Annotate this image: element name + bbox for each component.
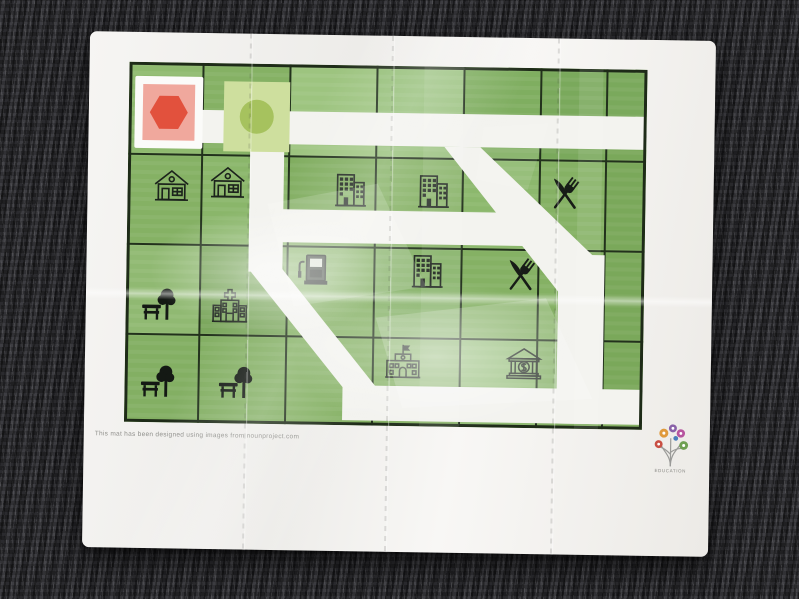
logo-caption: EDUCATION [643,468,697,474]
activity-mat: This mat has been designed using images … [82,31,716,557]
publisher-logo: EDUCATION [643,420,698,477]
mat-caption: This mat has been designed using images … [95,430,300,440]
go-tile [223,81,290,152]
town-map-board [124,62,648,430]
logo-tree-graphic [645,420,696,471]
stop-tile [134,76,203,149]
photo-of-activity-mat: This mat has been designed using images … [0,0,799,599]
